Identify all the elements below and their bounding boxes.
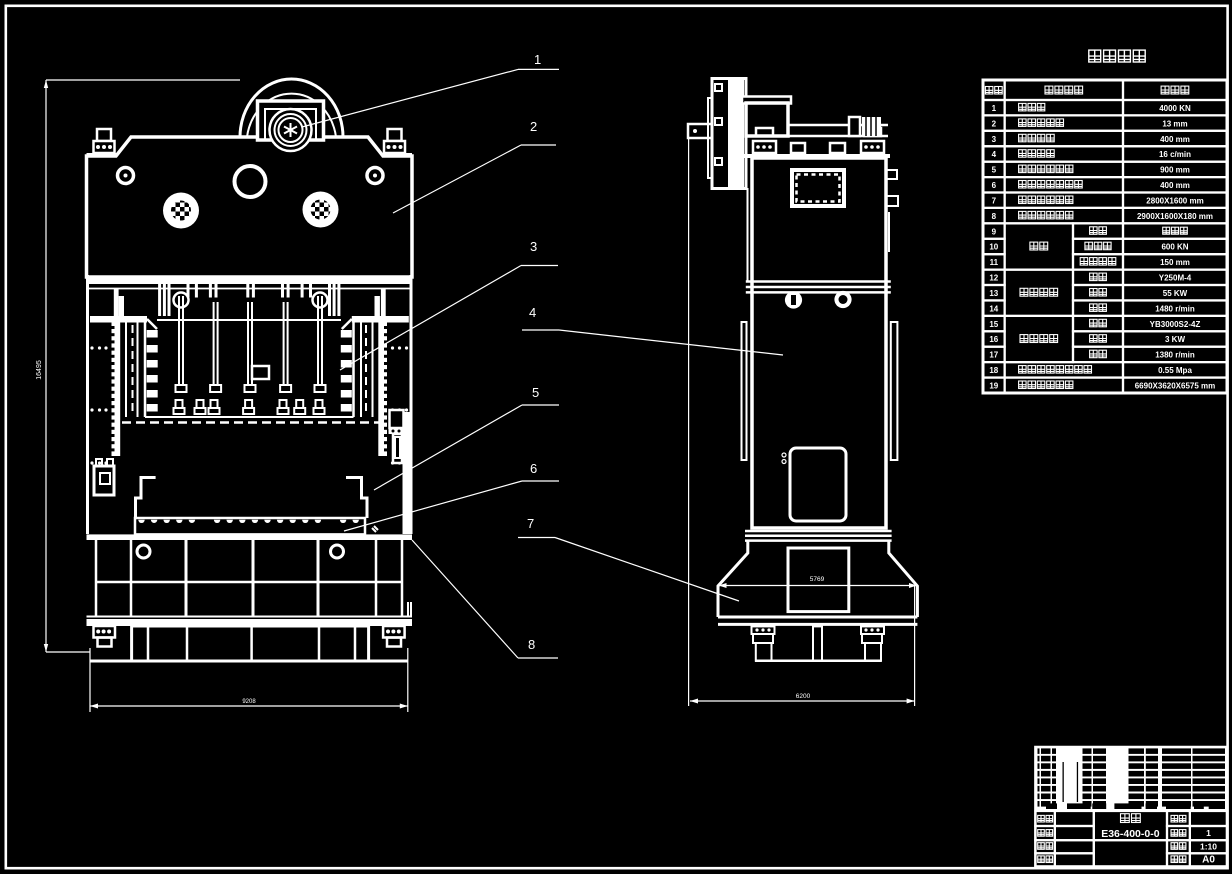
svg-text:2: 2	[992, 119, 997, 128]
svg-text:1: 1	[992, 104, 997, 113]
svg-text:4: 4	[992, 150, 997, 159]
svg-text:2800X1600 mm: 2800X1600 mm	[1146, 196, 1203, 205]
svg-text:7: 7	[992, 196, 997, 205]
svg-text:Y250M-4: Y250M-4	[1159, 274, 1192, 283]
svg-text:16: 16	[989, 335, 998, 344]
svg-text:19: 19	[989, 382, 998, 391]
svg-text:9208: 9208	[242, 699, 256, 705]
svg-text:13: 13	[989, 289, 998, 298]
svg-text:6200: 6200	[796, 693, 811, 700]
svg-text:1380 r/min: 1380 r/min	[1155, 351, 1195, 360]
svg-text:5: 5	[992, 166, 997, 175]
svg-text:55 KW: 55 KW	[1163, 289, 1188, 298]
svg-text:400 mm: 400 mm	[1160, 135, 1190, 144]
svg-text:7: 7	[527, 516, 534, 531]
svg-text:14: 14	[989, 304, 998, 313]
svg-text:150 mm: 150 mm	[1160, 258, 1190, 267]
svg-text:12: 12	[989, 274, 998, 283]
svg-text:5: 5	[532, 385, 539, 400]
svg-text:4000 KN: 4000 KN	[1159, 104, 1191, 113]
svg-text:15: 15	[989, 320, 998, 329]
svg-text:1:10: 1:10	[1200, 841, 1217, 851]
svg-text:900 mm: 900 mm	[1160, 166, 1190, 175]
svg-text:2900X1600X180 mm: 2900X1600X180 mm	[1137, 212, 1213, 221]
svg-text:YB3000S2-4Z: YB3000S2-4Z	[1150, 320, 1201, 329]
svg-text:10: 10	[989, 243, 998, 252]
svg-text:0.55 Mpa: 0.55 Mpa	[1158, 366, 1192, 375]
svg-text:3 KW: 3 KW	[1165, 335, 1185, 344]
svg-text:13 mm: 13 mm	[1162, 119, 1187, 128]
svg-text:2: 2	[530, 119, 537, 134]
svg-text:8: 8	[992, 212, 997, 221]
svg-text:5769: 5769	[810, 576, 825, 583]
svg-text:18: 18	[989, 366, 998, 375]
svg-text:17: 17	[989, 351, 998, 360]
svg-text:1: 1	[1206, 828, 1211, 838]
svg-text:600 KN: 600 KN	[1161, 243, 1188, 252]
svg-text:9: 9	[992, 227, 997, 236]
svg-text:8: 8	[528, 637, 535, 652]
svg-text:400 mm: 400 mm	[1160, 181, 1190, 190]
svg-text:6: 6	[530, 461, 537, 476]
svg-text:16495: 16495	[36, 360, 43, 380]
svg-text:1: 1	[534, 52, 541, 67]
svg-text:A0: A0	[1202, 855, 1215, 866]
svg-text:6690X3620X6575 mm: 6690X3620X6575 mm	[1135, 382, 1216, 391]
svg-text:16 c/min: 16 c/min	[1159, 150, 1191, 159]
svg-text:E36-400-0-0: E36-400-0-0	[1101, 828, 1160, 840]
svg-text:3: 3	[992, 135, 997, 144]
svg-text:6: 6	[992, 181, 997, 190]
svg-text:3: 3	[530, 239, 537, 254]
svg-text:1480 r/min: 1480 r/min	[1155, 304, 1195, 313]
svg-text:11: 11	[990, 258, 999, 267]
svg-text:4: 4	[529, 305, 536, 320]
